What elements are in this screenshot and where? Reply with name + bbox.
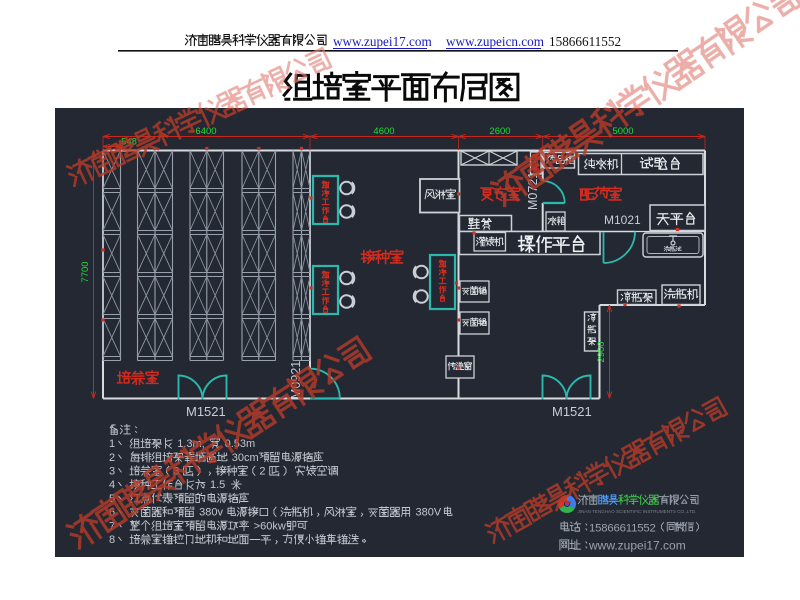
svg-text:2600: 2600 <box>489 126 510 137</box>
svg-text:8: 8 <box>109 534 115 546</box>
svg-text:380v: 380v <box>199 507 223 519</box>
svg-text:www.zupei17.com: www.zupei17.com <box>588 539 686 553</box>
svg-text:1.5: 1.5 <box>210 479 225 491</box>
svg-text:30cm: 30cm <box>232 452 259 464</box>
svg-text:JINAN TENGHAO SCIENTIFIC INSTR: JINAN TENGHAO SCIENTIFIC INSTRUMENTS CO.… <box>578 509 697 514</box>
svg-text:M1521: M1521 <box>186 404 226 419</box>
svg-text:M1521: M1521 <box>552 404 592 419</box>
svg-text:15866611552: 15866611552 <box>589 523 656 535</box>
svg-text:M1021: M1021 <box>604 213 641 227</box>
svg-text:7700: 7700 <box>80 261 91 282</box>
svg-text:2900: 2900 <box>596 341 607 362</box>
svg-text:15866611552: 15866611552 <box>549 34 621 49</box>
svg-text:3: 3 <box>109 466 115 478</box>
svg-text:6400: 6400 <box>195 126 216 137</box>
svg-text:380V: 380V <box>416 507 442 519</box>
svg-text:4600: 4600 <box>373 126 394 137</box>
svg-text:2: 2 <box>259 466 265 478</box>
svg-text:www.zupeicn.com: www.zupeicn.com <box>446 34 545 49</box>
svg-text:1: 1 <box>109 438 115 450</box>
svg-text:>60kw: >60kw <box>254 520 286 532</box>
svg-text:4: 4 <box>109 479 115 491</box>
svg-text:www.zupei17.com: www.zupei17.com <box>333 34 432 49</box>
svg-text:5000: 5000 <box>612 126 633 137</box>
svg-text:2: 2 <box>109 452 115 464</box>
